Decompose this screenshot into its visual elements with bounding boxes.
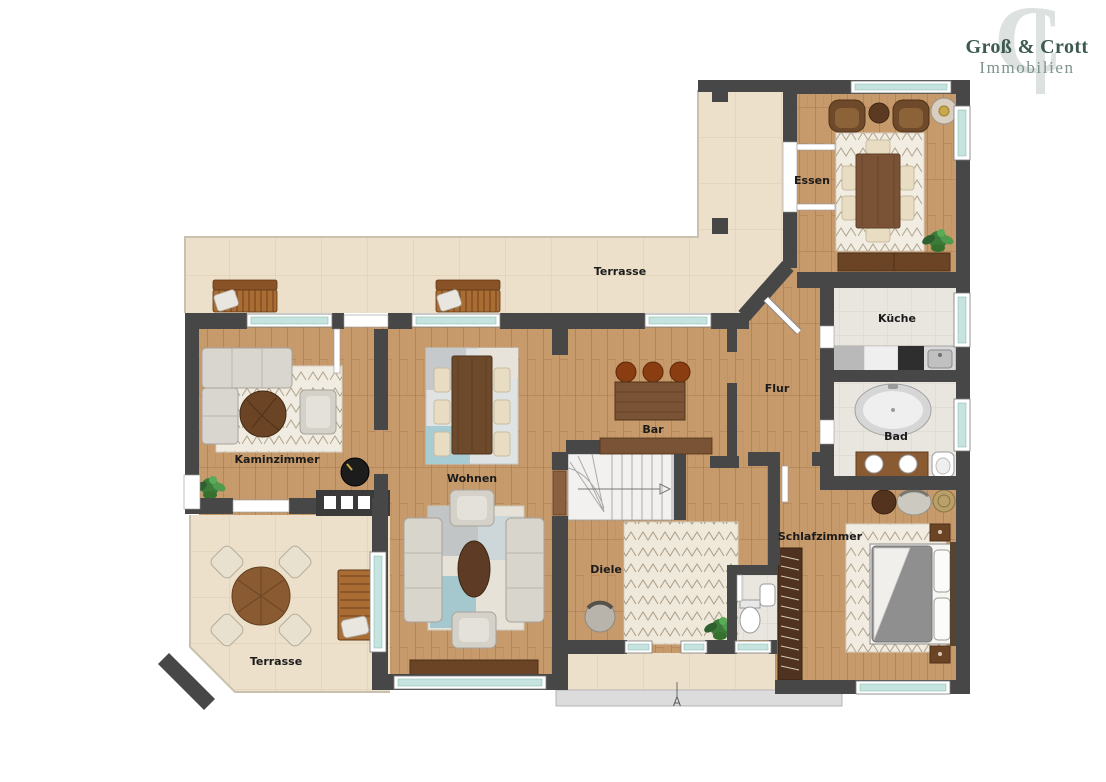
wohnen-coffee-table	[458, 541, 490, 597]
bad-sink	[865, 455, 883, 473]
door-opening	[820, 420, 834, 444]
bar-stool	[670, 362, 690, 382]
terrace-post	[712, 218, 728, 234]
room-label-diele: Diele	[590, 563, 622, 576]
logo-company-name: Groß & Crott	[952, 36, 1102, 59]
wohnen-sofa	[404, 518, 442, 622]
kamin-sofa	[202, 348, 292, 388]
bar-stool	[643, 362, 663, 382]
room-label-schlafzimmer: Schlafzimmer	[778, 530, 863, 543]
essen-chair	[866, 228, 890, 242]
floorplan-drawing: Essen Terrasse Küche Flur Bad Bar Kaminz…	[0, 0, 1106, 782]
door-opening	[184, 475, 200, 509]
wohnen-sideboard	[410, 660, 538, 675]
essen-chair	[900, 166, 914, 190]
kitchen-sink	[928, 350, 952, 368]
wohnen-chair	[434, 368, 450, 392]
door-opening	[820, 326, 834, 348]
wc-toilet	[740, 607, 760, 633]
room-label-wohnen: Wohnen	[447, 472, 497, 485]
room-label-terrasse-unten: Terrasse	[250, 655, 302, 668]
door-opening	[233, 500, 289, 512]
terrace-lounger	[338, 570, 372, 640]
bed-pillow	[934, 598, 950, 640]
room-label-kueche: Küche	[878, 312, 916, 325]
floor-entrance	[565, 653, 775, 690]
bad-sink	[899, 455, 917, 473]
entrance-marker-label: A	[673, 695, 682, 709]
wohnen-chair	[434, 400, 450, 424]
terrace-post	[712, 86, 728, 102]
wohnen-chair	[494, 368, 510, 392]
door-opening	[374, 430, 388, 474]
wohnen-sofa	[506, 518, 544, 622]
logo-subtitle: Immobilien	[952, 58, 1102, 78]
essen-chair	[900, 196, 914, 220]
bed-pillow	[934, 550, 950, 592]
room-label-bar: Bar	[642, 423, 664, 436]
door-opening	[344, 315, 388, 327]
room-label-essen: Essen	[794, 174, 830, 187]
floor-terrace-top	[185, 90, 783, 313]
door-leaf	[553, 471, 566, 515]
room-label-bad: Bad	[884, 430, 908, 443]
terrace-bench-2	[436, 280, 500, 312]
essen-chair	[866, 140, 890, 154]
wohnen-chair	[434, 432, 450, 456]
company-logo: C Groß & Crott Immobilien	[952, 6, 1102, 98]
door-leaf	[797, 144, 835, 150]
door-leaf	[782, 466, 788, 502]
bar-furniture	[615, 362, 690, 420]
essen-chair	[842, 166, 856, 190]
door-leaf	[334, 329, 340, 373]
floorplan-page: Essen Terrasse Küche Flur Bad Bar Kaminz…	[0, 0, 1106, 782]
wohnen-chair	[494, 400, 510, 424]
wc-sink	[760, 584, 775, 606]
room-kueche-furniture	[834, 346, 956, 372]
essen-side-table	[869, 103, 889, 123]
bar-counter	[615, 382, 685, 420]
essen-chair	[842, 196, 856, 220]
bar-stool	[616, 362, 636, 382]
bar-back-counter	[600, 438, 712, 454]
room-label-kaminzimmer: Kaminzimmer	[235, 453, 321, 466]
bed-headboard	[950, 542, 956, 646]
schlaf-side-table	[872, 490, 896, 514]
room-label-terrasse-oben: Terrasse	[594, 265, 646, 278]
door-leaf	[737, 575, 742, 601]
door-leaf	[797, 204, 835, 210]
wohnen-chair	[494, 432, 510, 456]
room-label-flur: Flur	[765, 382, 790, 395]
staircase	[568, 454, 674, 520]
terrace-bench-1	[213, 280, 277, 312]
hanging-fireplace	[341, 458, 369, 486]
schlaf-basket	[933, 490, 955, 512]
